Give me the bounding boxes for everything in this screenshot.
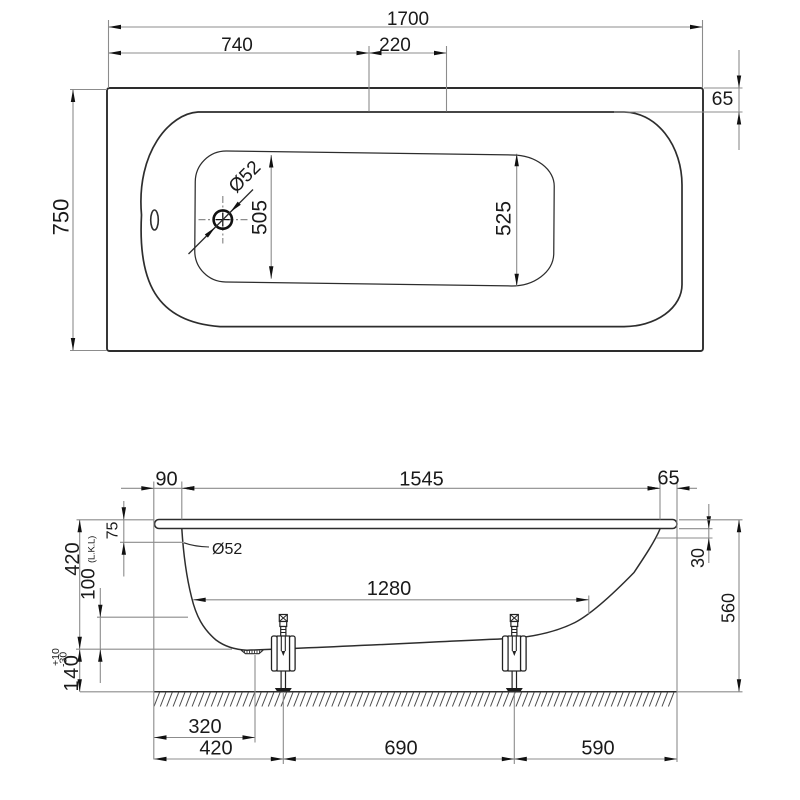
svg-text:90: 90 xyxy=(155,469,177,491)
svg-text:65: 65 xyxy=(712,88,734,110)
svg-text:1545: 1545 xyxy=(399,469,444,491)
svg-text:1700: 1700 xyxy=(387,9,429,30)
svg-text:220: 220 xyxy=(379,35,411,56)
svg-text:75: 75 xyxy=(105,522,122,540)
svg-text:30: 30 xyxy=(688,548,708,568)
svg-text:750: 750 xyxy=(49,199,74,236)
svg-text:65: 65 xyxy=(657,468,679,490)
svg-text:590: 590 xyxy=(581,738,614,760)
svg-text:560: 560 xyxy=(719,593,739,623)
svg-text:Ø52: Ø52 xyxy=(212,541,242,558)
svg-text:420: 420 xyxy=(199,738,232,760)
svg-text:1280: 1280 xyxy=(367,578,412,600)
svg-text:690: 690 xyxy=(384,738,417,760)
svg-text:505: 505 xyxy=(249,200,272,235)
svg-text:320: 320 xyxy=(188,716,221,738)
svg-text:525: 525 xyxy=(493,201,516,236)
svg-text:-30: -30 xyxy=(58,652,70,667)
svg-text:740: 740 xyxy=(221,35,253,56)
